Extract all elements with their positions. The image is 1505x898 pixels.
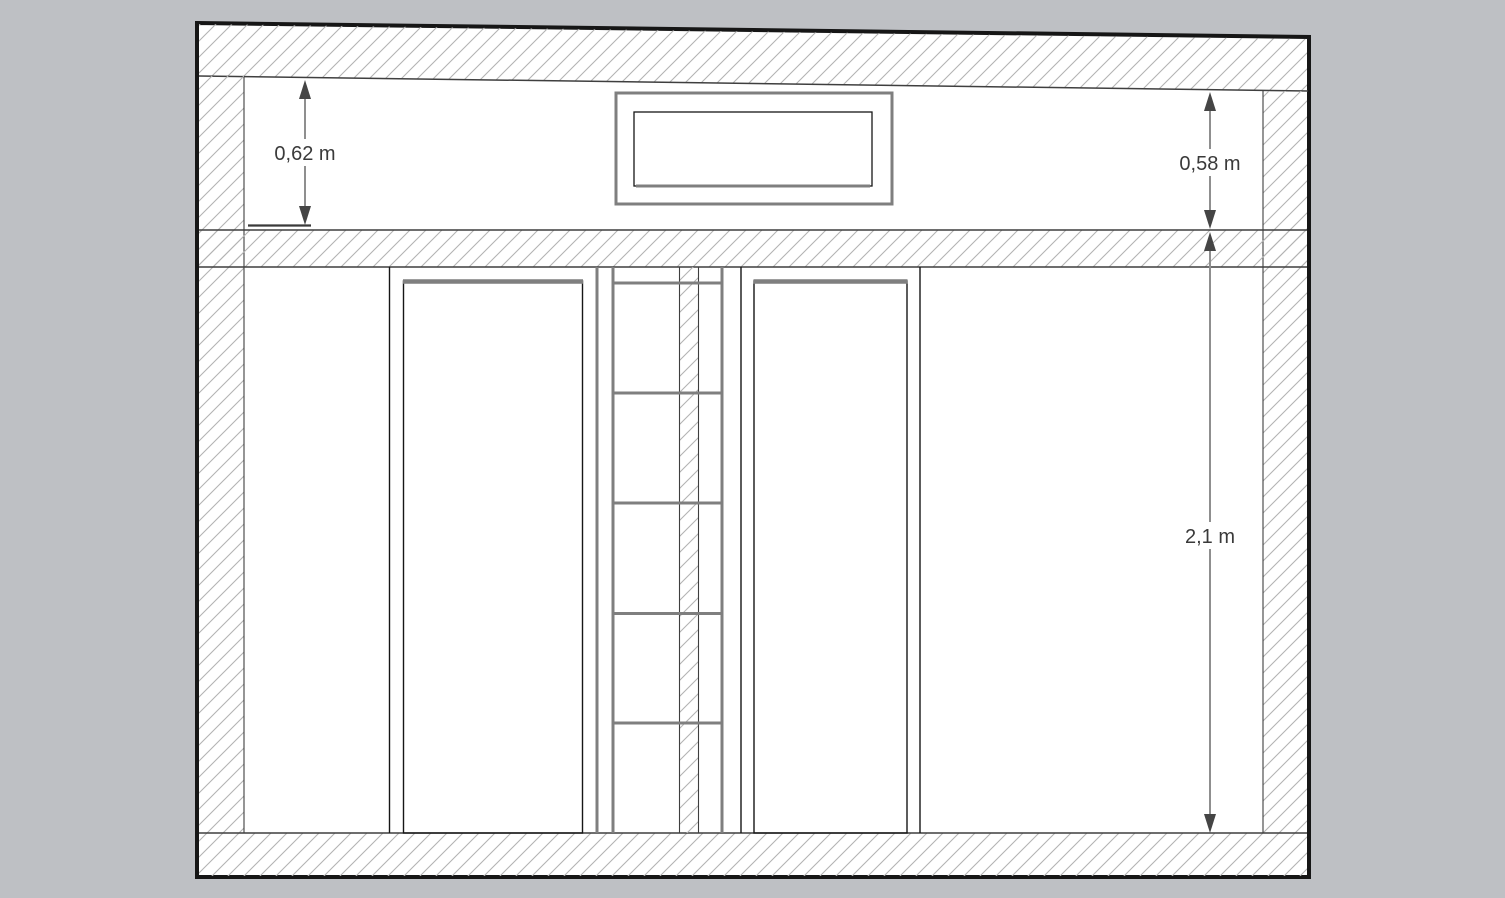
- sign-board: [616, 93, 892, 204]
- drawing-canvas: 0,62 m 0,58 m 2,1 m: [0, 0, 1505, 898]
- floor-band: [199, 833, 1307, 876]
- right-pier: [1263, 91, 1307, 833]
- left-pier: [199, 76, 244, 833]
- storefront-elevation-drawing: 0,62 m 0,58 m 2,1 m: [0, 0, 1505, 898]
- lintel-band: [199, 230, 1307, 267]
- dimension-label-opening-height: 2,1 m: [1185, 526, 1235, 548]
- sign-board-inner-panel: [634, 112, 872, 186]
- dimension-label-transom-left: 0,62 m: [274, 143, 335, 165]
- center-mullion-hatched: [680, 267, 699, 833]
- dimension-label-transom-right: 0,58 m: [1179, 153, 1240, 175]
